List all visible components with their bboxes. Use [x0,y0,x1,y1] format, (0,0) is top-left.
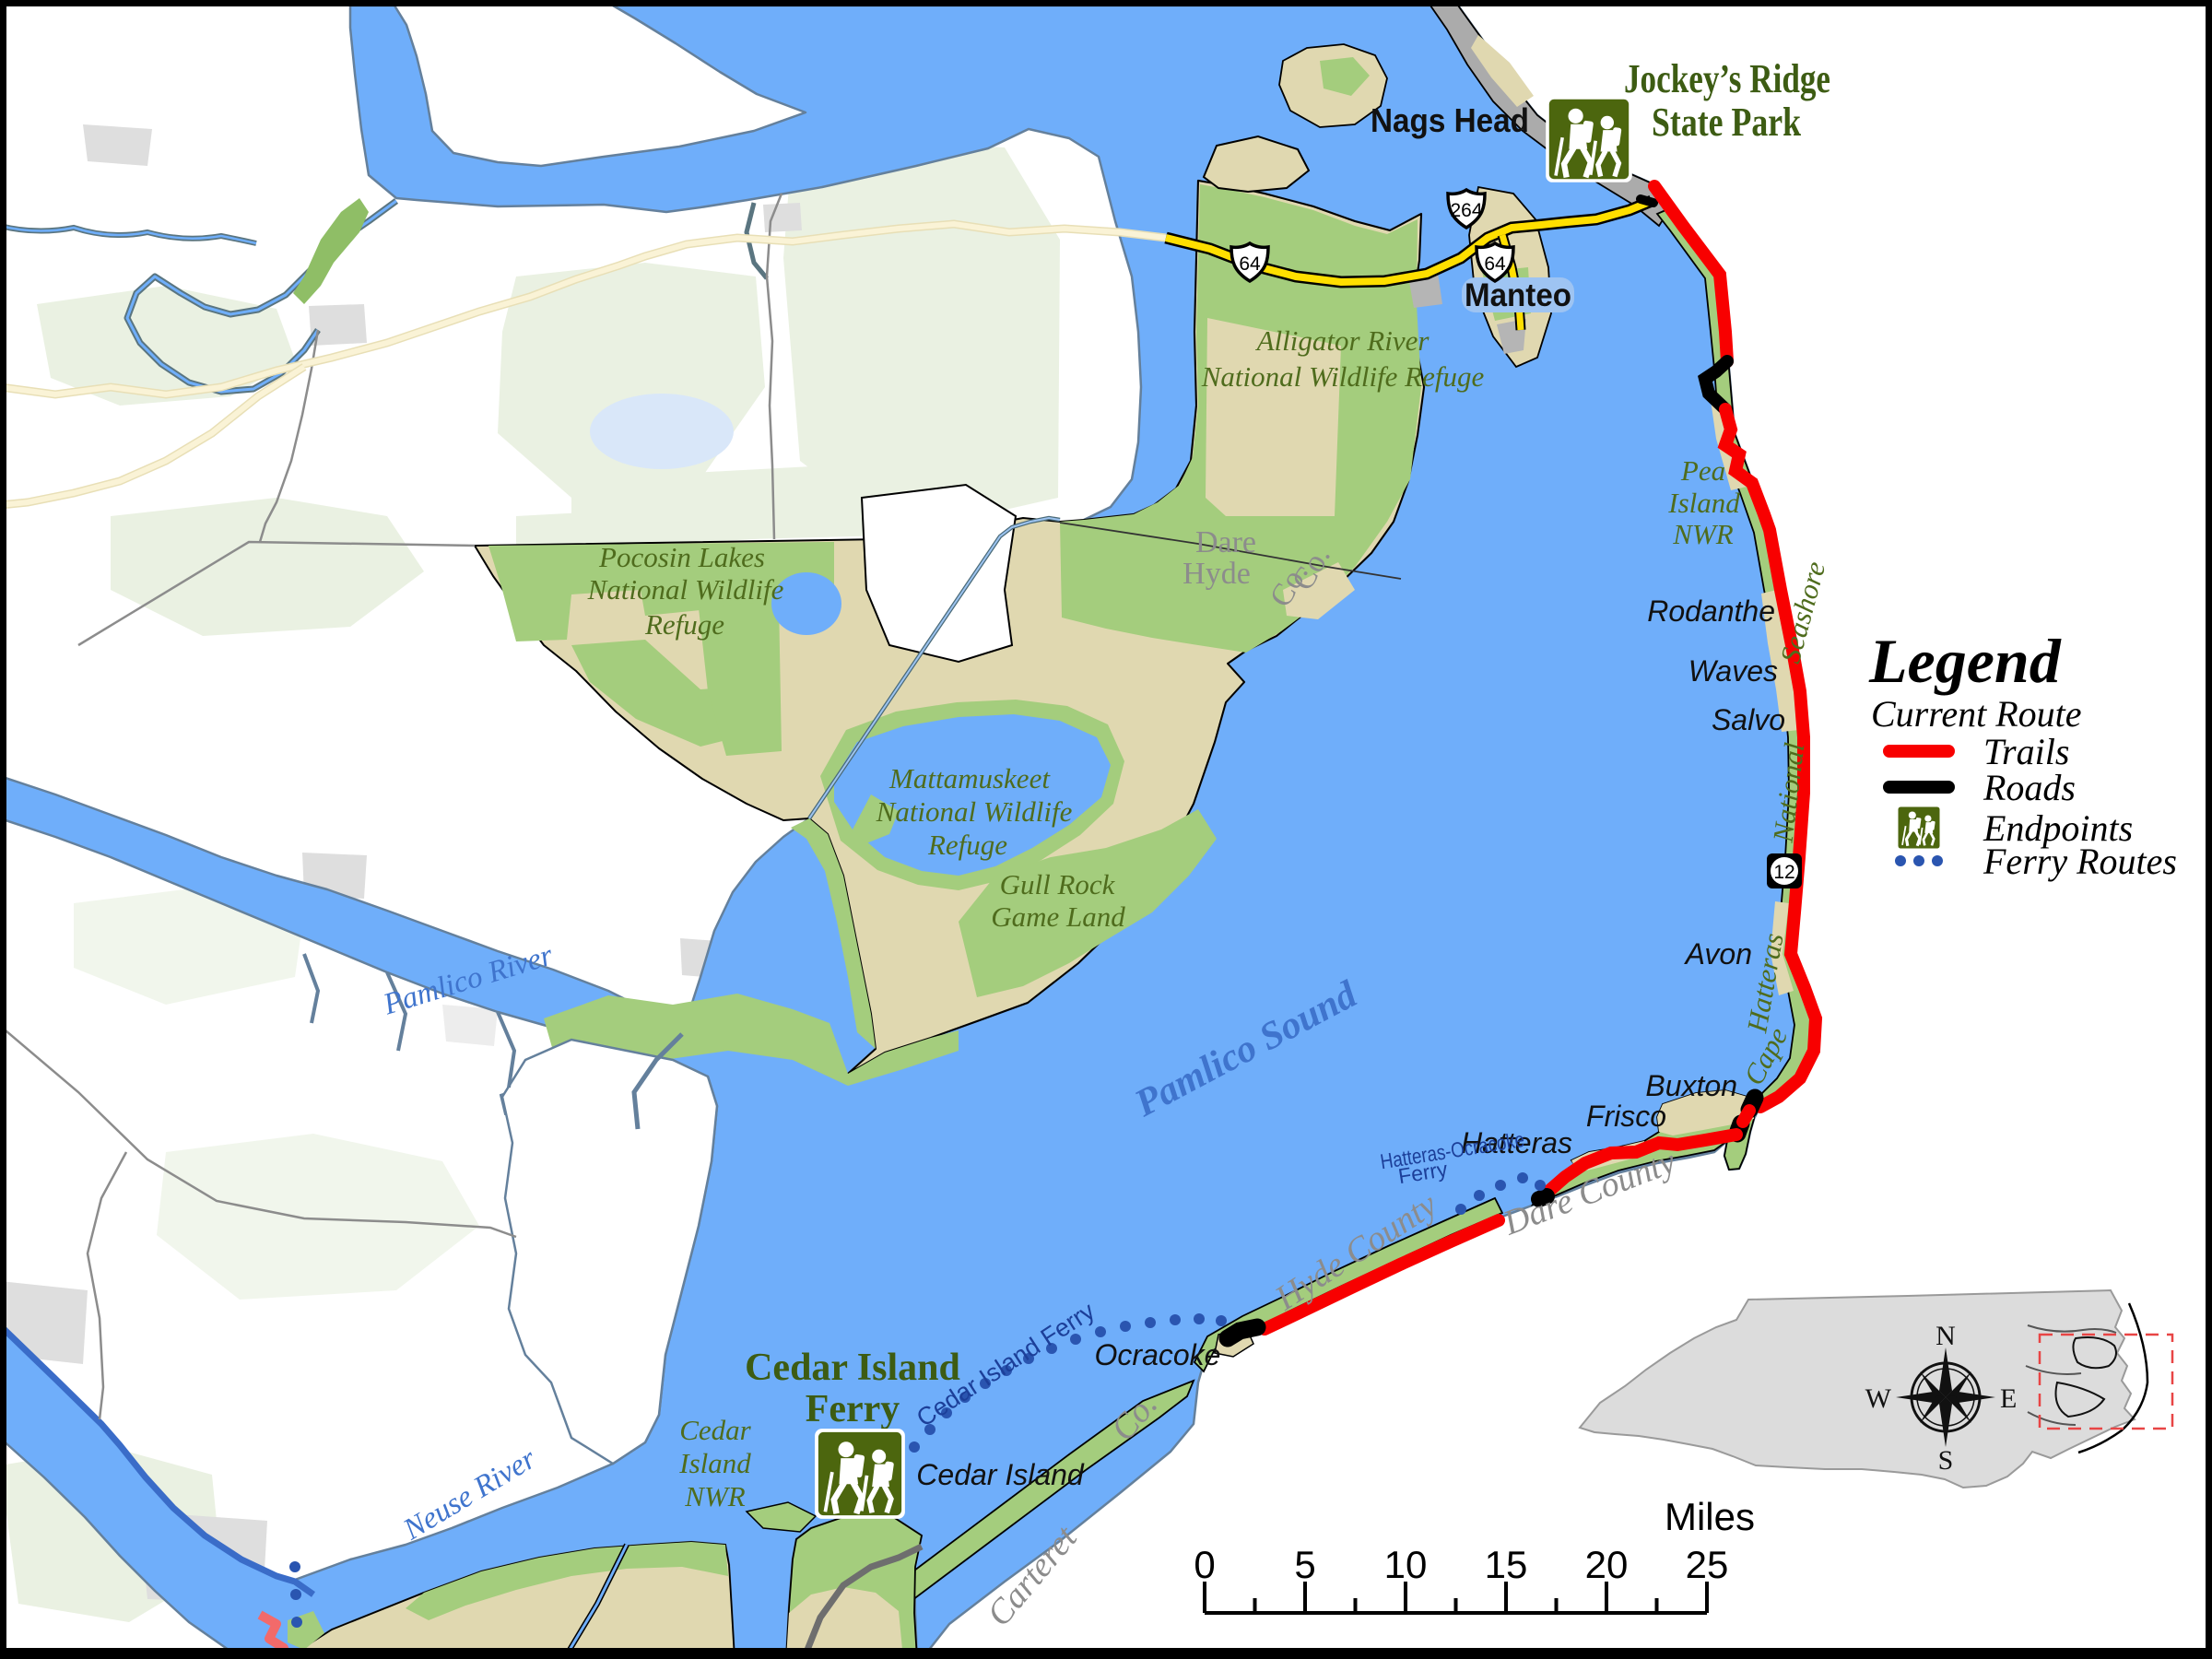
svg-text:Buxton: Buxton [1645,1069,1737,1102]
svg-text:264: 264 [1450,200,1482,221]
svg-text:S: S [1938,1445,1954,1476]
svg-text:Nags Head: Nags Head [1371,101,1529,139]
svg-text:0: 0 [1194,1543,1215,1586]
svg-text:Miles: Miles [1665,1495,1755,1538]
svg-text:E: E [2000,1383,2017,1414]
svg-text:64: 64 [1239,253,1261,275]
svg-text:Salvo: Salvo [1712,703,1785,736]
svg-text:Ferry Routes: Ferry Routes [1983,841,2177,882]
svg-text:N: N [1935,1321,1956,1351]
svg-text:Pea: Pea [1680,454,1725,487]
svg-text:Cedar Island: Cedar Island [916,1458,1085,1491]
svg-text:Avon: Avon [1684,937,1752,971]
svg-text:Dare: Dare [1195,525,1256,559]
svg-text:NWR: NWR [1672,518,1734,550]
svg-text:Gull Rock: Gull Rock [1000,868,1116,900]
svg-text:25: 25 [1686,1543,1729,1586]
svg-text:Current Route: Current Route [1871,693,2082,735]
svg-text:Ocracoke: Ocracoke [1095,1338,1221,1371]
svg-text:NWR: NWR [684,1480,746,1512]
svg-text:National Wildlife: National Wildlife [876,795,1073,828]
svg-text:Waves: Waves [1688,654,1778,688]
svg-text:Jockey’s Ridge: Jockey’s Ridge [1624,56,1830,101]
svg-text:5: 5 [1294,1543,1315,1586]
svg-text:Rodanthe: Rodanthe [1647,594,1775,628]
svg-text:W: W [1865,1383,1892,1414]
svg-text:Manteo: Manteo [1465,277,1571,313]
svg-text:Refuge: Refuge [644,608,724,641]
svg-text:Roads: Roads [1983,767,2076,808]
svg-text:National Wildlife: National Wildlife [587,573,784,606]
svg-text:Island: Island [678,1447,751,1479]
svg-text:Legend: Legend [1868,626,2062,696]
svg-text:Frisco: Frisco [1586,1100,1666,1133]
svg-text:Hyde: Hyde [1182,557,1251,591]
svg-text:10: 10 [1384,1543,1428,1586]
svg-text:Game Land: Game Land [991,900,1125,933]
svg-text:Pocosin Lakes: Pocosin Lakes [598,541,765,573]
svg-text:Refuge: Refuge [927,829,1007,861]
svg-text:64: 64 [1484,253,1506,275]
svg-text:Ferry: Ferry [806,1388,900,1430]
svg-text:State Park: State Park [1652,100,1801,145]
svg-text:Island: Island [1667,487,1740,519]
svg-text:Cedar: Cedar [679,1414,751,1446]
svg-text:Cedar Island: Cedar Island [745,1347,960,1389]
svg-text:12: 12 [1773,862,1794,883]
svg-text:Mattamuskeet: Mattamuskeet [888,762,1051,794]
svg-text:Alligator River: Alligator River [1255,324,1430,357]
svg-text:20: 20 [1585,1543,1629,1586]
svg-text:National Wildlife Refuge: National Wildlife Refuge [1201,360,1485,393]
svg-text:15: 15 [1485,1543,1528,1586]
